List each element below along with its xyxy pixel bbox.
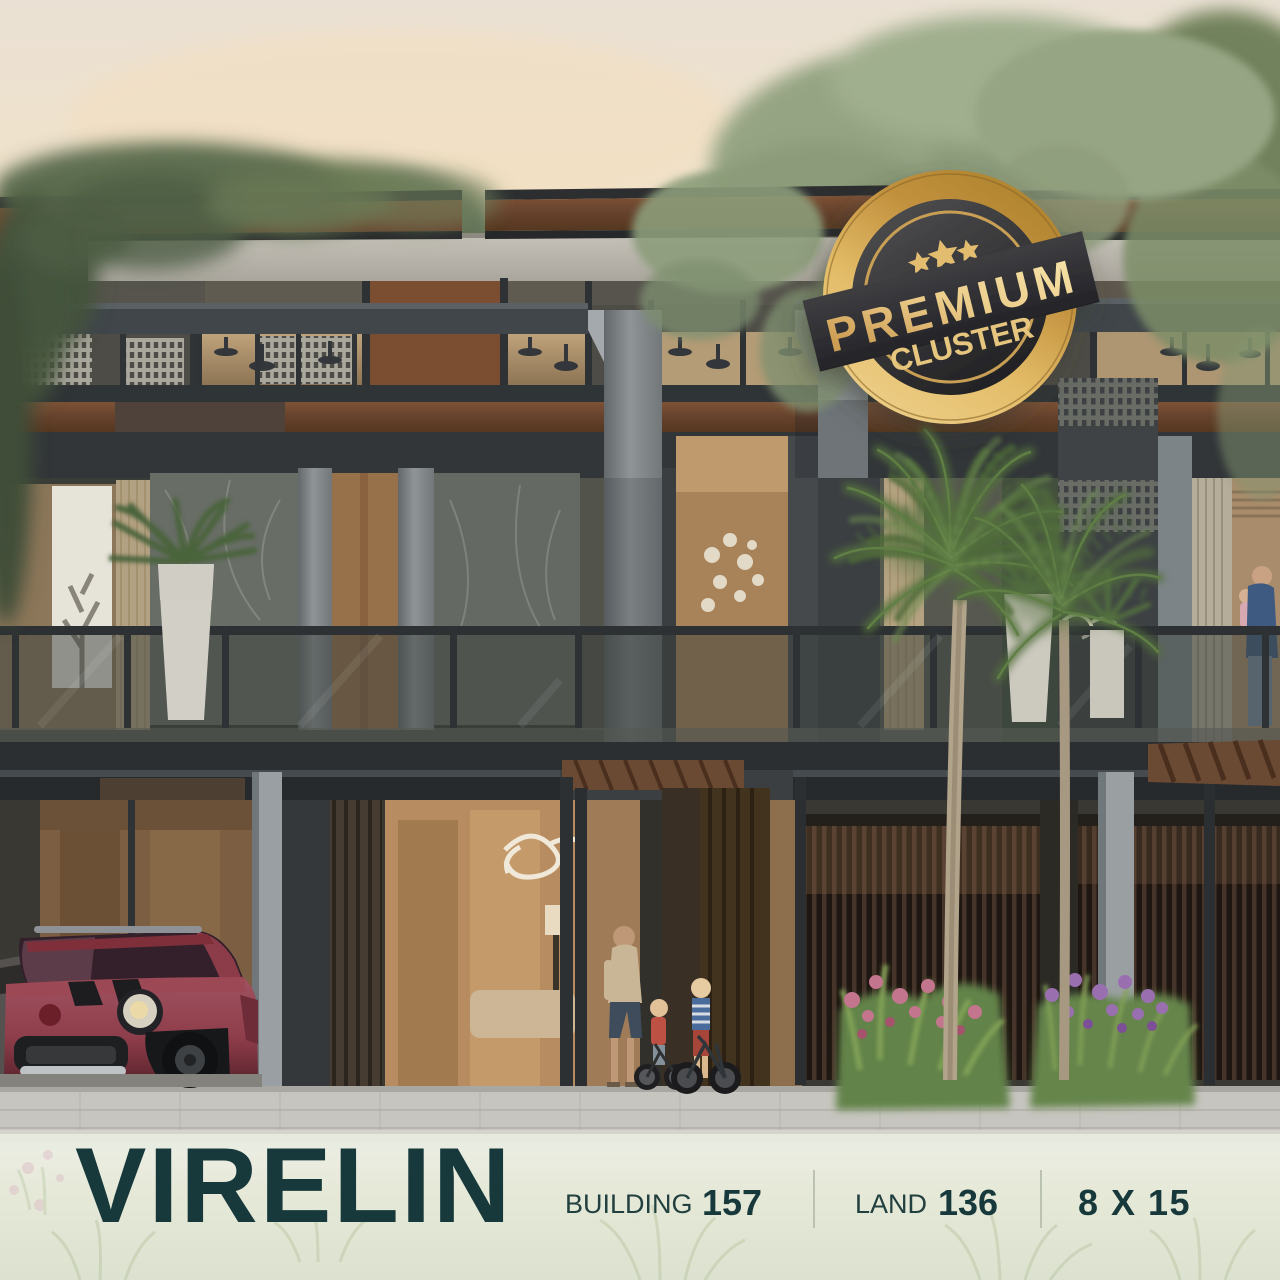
svg-text:157: 157 (702, 1182, 762, 1223)
svg-text:8 X 15: 8 X 15 (1078, 1182, 1191, 1223)
svg-text:136: 136 (938, 1182, 998, 1223)
svg-text:VIRELIN: VIRELIN (75, 1125, 513, 1245)
svg-text:LAND: LAND (855, 1189, 927, 1219)
svg-text:BUILDING: BUILDING (565, 1189, 693, 1219)
